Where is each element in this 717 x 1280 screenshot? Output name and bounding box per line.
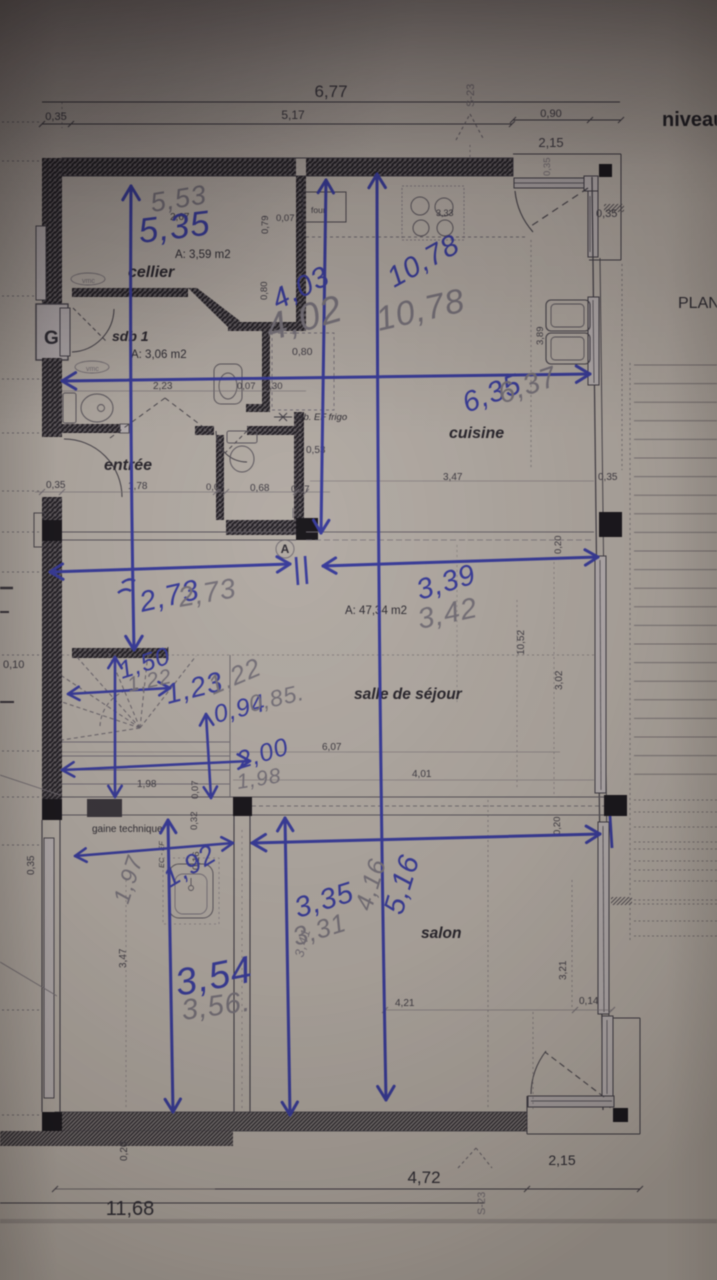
svg-text:cellier: cellier — [128, 264, 175, 281]
svg-text:0,85.: 0,85. — [246, 679, 307, 717]
svg-text:G: G — [44, 328, 59, 349]
svg-text:0,10: 0,10 — [3, 659, 24, 671]
svg-text:0,79: 0,79 — [260, 216, 271, 235]
svg-text:cuisine: cuisine — [449, 425, 504, 442]
svg-text:6,77: 6,77 — [314, 82, 347, 101]
svg-text:4,21: 4,21 — [395, 998, 415, 1009]
svg-text:11,68: 11,68 — [106, 1198, 155, 1220]
svg-text:four: four — [311, 205, 326, 215]
svg-text:A: 47,34 m2: A: 47,34 m2 — [345, 605, 407, 617]
svg-text:0,20: 0,20 — [553, 536, 564, 555]
svg-text:5,17: 5,17 — [281, 108, 305, 122]
svg-text:10,52: 10,52 — [516, 630, 527, 655]
svg-text:rob. EF frigo: rob. EF frigo — [295, 412, 347, 423]
svg-text:2,15: 2,15 — [548, 1152, 575, 1168]
svg-text:3,47: 3,47 — [118, 948, 129, 968]
svg-text:0,35: 0,35 — [46, 480, 66, 491]
svg-text:0,35: 0,35 — [598, 472, 618, 483]
svg-text:niveau: niveau — [662, 109, 717, 131]
svg-text:0,32: 0,32 — [189, 812, 200, 831]
svg-text:salon: salon — [421, 925, 461, 942]
svg-text:0,80: 0,80 — [292, 346, 313, 358]
svg-text:0,07: 0,07 — [237, 381, 256, 392]
svg-text:vmc: vmc — [82, 278, 95, 285]
svg-text:PLAN: PLAN — [678, 295, 717, 312]
svg-text:0,35: 0,35 — [542, 158, 553, 177]
svg-text:entrée: entrée — [104, 457, 152, 474]
svg-text:0,30: 0,30 — [264, 381, 283, 392]
svg-text:1,98: 1,98 — [137, 779, 157, 790]
svg-text:3,02: 3,02 — [554, 670, 565, 690]
svg-text:0,68: 0,68 — [250, 483, 270, 494]
svg-text:5,35: 5,35 — [136, 203, 212, 250]
svg-text:gaine technique: gaine technique — [92, 824, 163, 835]
svg-text:0,07: 0,07 — [190, 781, 201, 800]
svg-text:S-23: S-23 — [465, 84, 477, 107]
svg-text:6,37: 6,37 — [494, 360, 562, 410]
svg-text:salle de séjour: salle de séjour — [354, 686, 463, 703]
svg-text:3,33: 3,33 — [436, 208, 454, 218]
svg-text:0,35: 0,35 — [45, 111, 66, 123]
svg-text:3,89: 3,89 — [535, 327, 546, 346]
svg-text:S-23: S-23 — [476, 1192, 488, 1215]
svg-text:0,20: 0,20 — [552, 817, 563, 836]
svg-text:0,07: 0,07 — [206, 482, 225, 493]
svg-text:4,01: 4,01 — [412, 769, 432, 780]
svg-text:3,21: 3,21 — [558, 960, 569, 980]
svg-text:3,47: 3,47 — [443, 472, 463, 483]
svg-text:A: 3,06 m2: A: 3,06 m2 — [131, 349, 187, 361]
svg-text:A: A — [281, 542, 290, 556]
svg-text:vmc: vmc — [86, 366, 99, 373]
svg-text:A: 3,59 m2: A: 3,59 m2 — [175, 249, 231, 261]
svg-text:0,07: 0,07 — [291, 484, 310, 495]
svg-text:6,07: 6,07 — [322, 742, 342, 753]
svg-text:0,20: 0,20 — [119, 1141, 130, 1161]
svg-text:0,35: 0,35 — [26, 855, 37, 875]
svg-text:1,97: 1,97 — [108, 852, 148, 907]
svg-text:0,90: 0,90 — [540, 108, 561, 120]
svg-text:2,23: 2,23 — [153, 381, 173, 392]
svg-text:4,72: 4,72 — [407, 1168, 440, 1187]
svg-text:2,15: 2,15 — [538, 135, 563, 150]
svg-text:0,07: 0,07 — [276, 213, 295, 224]
svg-text:0,14: 0,14 — [579, 996, 599, 1007]
svg-text:10,78: 10,78 — [372, 282, 468, 339]
